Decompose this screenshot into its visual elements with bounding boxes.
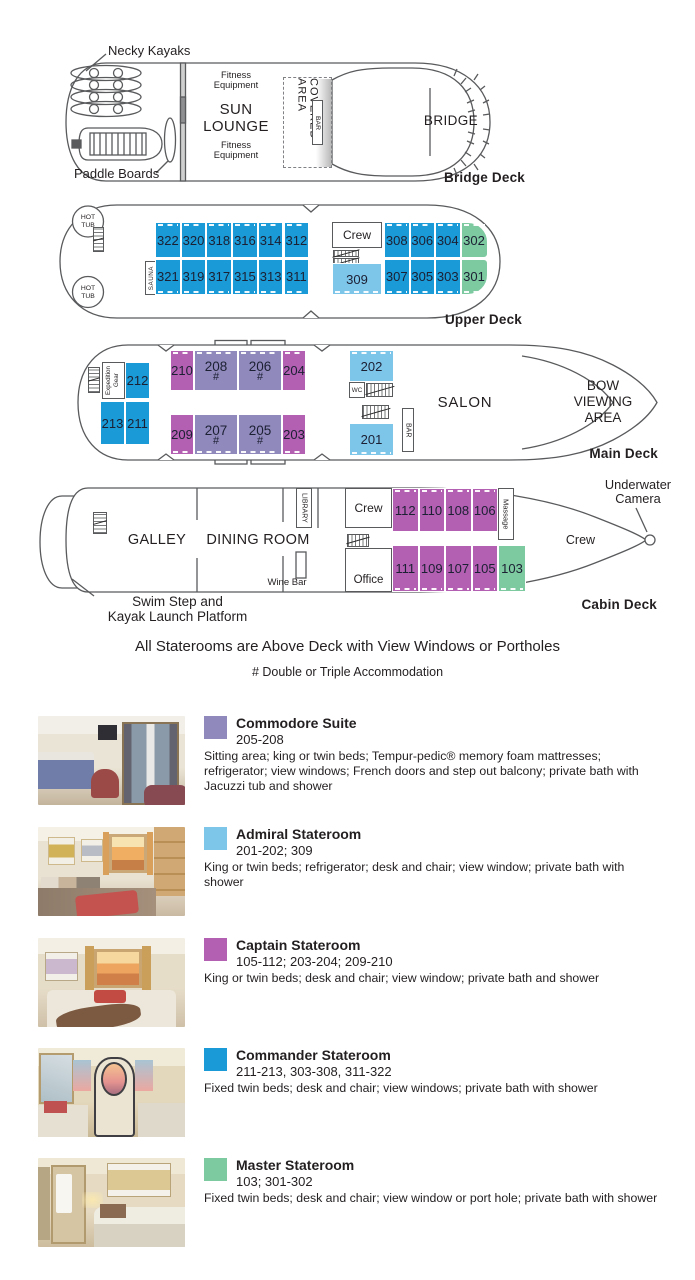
expedition-gear-box: Expedition Gear xyxy=(102,362,125,399)
cabin-108: 108 xyxy=(445,488,472,532)
admiral-description: King or twin beds; refrigerator; desk an… xyxy=(204,860,666,890)
photo-detail xyxy=(100,1204,126,1217)
photo-detail xyxy=(91,769,119,797)
double-triple-marker: # xyxy=(257,373,263,382)
photo-detail xyxy=(44,1101,68,1113)
cabin-105: 105 xyxy=(472,545,499,592)
photo-detail xyxy=(138,1103,185,1137)
massage-label: Massage xyxy=(502,499,511,529)
double-triple-marker: # xyxy=(213,373,219,382)
cabin-203: 203 xyxy=(282,414,306,455)
cabin-103: 103 xyxy=(498,545,526,592)
photo-detail xyxy=(81,839,104,862)
cabin-110: 110 xyxy=(419,488,446,532)
photo-detail xyxy=(48,837,75,866)
cabin-112: 112 xyxy=(392,488,419,532)
cabin-stairs-aft xyxy=(93,512,107,534)
sun-lounge-label: SUN LOUNGE xyxy=(198,102,274,136)
fitness-equipment-bottom-label: Fitness Equipment xyxy=(206,139,266,161)
bridge-room-label: BRIDGE xyxy=(428,113,474,129)
master-description: Fixed twin beds; desk and chair; view wi… xyxy=(204,1191,666,1206)
covered-area: COVERED AREA xyxy=(283,77,332,168)
main-bar: BAR xyxy=(402,408,414,452)
stateroom-photo-captain xyxy=(38,938,185,1027)
galley-label: GALLEY xyxy=(112,532,202,548)
necky-kayaks-label: Necky Kayaks xyxy=(108,44,190,59)
commodore-description: Sitting area; king or twin beds; Tempur-… xyxy=(204,749,666,794)
underwater-camera-label: Underwater Camera xyxy=(582,476,694,508)
stateroom-photo-commodore xyxy=(38,716,185,805)
photo-detail xyxy=(85,946,94,991)
cabin-303: 303 xyxy=(435,259,461,296)
wc-box: WC xyxy=(349,382,365,398)
main-stairs-aft xyxy=(88,367,100,393)
cabin-321: 321 xyxy=(155,259,181,296)
accommodation-note: # Double or Triple Accommodation xyxy=(0,665,695,679)
commander-description: Fixed twin beds; desk and chair; view wi… xyxy=(204,1081,666,1096)
upper-deck: HOT TUB HOT TUB SAUNA 322 320 318 316 31… xyxy=(55,195,535,335)
library: LIBRARY xyxy=(296,488,312,528)
photo-detail xyxy=(45,952,78,981)
cabin-204: 204 xyxy=(282,350,306,391)
swim-step-label: Swim Step and Kayak Launch Platform xyxy=(70,594,285,624)
photo-detail xyxy=(135,1060,153,1090)
cabin-320: 320 xyxy=(181,222,207,258)
cabin-309: 309 xyxy=(332,263,382,295)
cabin-306: 306 xyxy=(410,222,436,258)
swim-step-line1: Swim Step and xyxy=(132,594,223,609)
cabin-106: 106 xyxy=(472,488,499,532)
double-triple-marker: # xyxy=(213,437,219,446)
photo-detail xyxy=(38,752,94,789)
main-deck-name: Main Deck xyxy=(520,446,658,461)
photo-detail xyxy=(56,1174,72,1213)
main-deck: Expedition Gear 212 213 211 210 208 # 20… xyxy=(70,335,680,470)
photo-detail xyxy=(154,827,185,896)
cabin-314: 314 xyxy=(258,222,284,258)
staterooms-note: All Staterooms are Above Deck with View … xyxy=(0,638,695,655)
office-box: Office xyxy=(345,548,392,592)
admiral-swatch xyxy=(204,827,227,850)
cabin-205: 205 # xyxy=(238,414,282,455)
dining-room-label: DINING ROOM xyxy=(202,532,314,548)
paddle-boards-label: Paddle Boards xyxy=(74,167,159,182)
admiral-rooms: 201-202; 309 xyxy=(236,843,313,858)
cabin-319: 319 xyxy=(181,259,207,296)
photo-detail xyxy=(109,834,147,873)
cabin-311: 311 xyxy=(284,259,310,296)
photo-detail xyxy=(94,949,143,988)
photo-detail xyxy=(107,1163,171,1197)
master-title: Master Stateroom xyxy=(236,1157,354,1173)
bridge-bar-label: BAR xyxy=(314,116,321,130)
commander-title: Commander Stateroom xyxy=(236,1047,391,1063)
double-triple-marker: # xyxy=(257,437,263,446)
main-stairs-fwd-upper xyxy=(366,383,393,397)
photo-detail xyxy=(39,1053,74,1103)
cabin-313: 313 xyxy=(258,259,284,296)
cabin-317: 317 xyxy=(206,259,232,296)
cabin-307: 307 xyxy=(384,259,410,296)
main-stairs-fwd-lower xyxy=(362,405,389,419)
commodore-swatch xyxy=(204,716,227,739)
captain-description: King or twin beds; desk and chair; view … xyxy=(204,971,666,986)
cabin-107: 107 xyxy=(445,545,472,592)
master-rooms: 103; 301-302 xyxy=(236,1174,313,1189)
photo-detail xyxy=(147,832,153,875)
library-label: LIBRARY xyxy=(301,493,308,523)
bridge-deck-name: Bridge Deck xyxy=(420,170,525,185)
admiral-title: Admiral Stateroom xyxy=(236,826,361,842)
photo-detail xyxy=(73,1060,91,1090)
cabin-111: 111 xyxy=(392,545,419,592)
cabin-312: 312 xyxy=(284,222,310,258)
photo-detail xyxy=(142,946,151,991)
cabin-deck-name: Cabin Deck xyxy=(547,597,657,612)
main-bar-label: BAR xyxy=(405,423,412,437)
expedition-gear-label: Expedition Gear xyxy=(105,363,121,398)
cabin-crew-aft-box: Crew xyxy=(345,488,392,528)
commodore-title: Commodore Suite xyxy=(236,715,357,731)
fitness-equipment-top-label: Fitness Equipment xyxy=(206,69,266,91)
swim-step-line2: Kayak Launch Platform xyxy=(108,609,248,624)
stateroom-photo-commander xyxy=(38,1048,185,1137)
cabin-318: 318 xyxy=(206,222,232,258)
deck-plan-page: Necky Kayaks Fitness Equipment SUN LOUNG… xyxy=(0,0,695,1280)
commander-rooms: 211-213, 303-308, 311-322 xyxy=(236,1064,392,1079)
upper-crew-box: Crew xyxy=(332,222,382,248)
cabin-212: 212 xyxy=(125,362,150,399)
cabin-209: 209 xyxy=(170,414,194,455)
wine-bar-label: Wine Bar xyxy=(256,577,318,589)
photo-detail xyxy=(38,1167,50,1240)
hot-tub-bottom-label: HOT TUB xyxy=(75,282,101,303)
cabin-211: 211 xyxy=(125,401,150,445)
cabin-109: 109 xyxy=(419,545,446,592)
cabin-207: 207 # xyxy=(194,414,238,455)
captain-rooms: 105-112; 203-204; 209-210 xyxy=(236,954,393,969)
cabin-crew-fwd-label: Crew xyxy=(553,532,608,547)
massage-room: Massage xyxy=(498,488,514,540)
stateroom-photo-admiral xyxy=(38,827,185,916)
photo-detail xyxy=(144,785,185,805)
cabin-stairs-mid xyxy=(347,534,369,547)
upper-deck-name: Upper Deck xyxy=(385,312,522,327)
photo-detail xyxy=(98,725,117,740)
bridge-bar: BAR xyxy=(312,100,323,145)
cabin-213: 213 xyxy=(100,401,125,445)
captain-swatch xyxy=(204,938,227,961)
captain-title: Captain Stateroom xyxy=(236,937,360,953)
upper-stairs-mid-1 xyxy=(333,250,359,257)
salon-label: SALON xyxy=(430,394,500,412)
cabin-deck: GALLEY DINING ROOM LIBRARY Wine Bar Crew… xyxy=(30,470,695,630)
cabin-208: 208 # xyxy=(194,350,238,391)
cabin-305: 305 xyxy=(410,259,436,296)
cabin-202: 202 xyxy=(349,350,394,382)
photo-detail xyxy=(94,990,126,1003)
cabin-210: 210 xyxy=(170,350,194,391)
bridge-deck: Necky Kayaks Fitness Equipment SUN LOUNG… xyxy=(60,40,535,190)
commodore-rooms: 205-208 xyxy=(236,732,284,747)
cabin-201: 201 xyxy=(349,423,394,456)
commander-swatch xyxy=(204,1048,227,1071)
bow-viewing-area-label: BOW VIEWING AREA xyxy=(559,377,647,427)
cabin-315: 315 xyxy=(232,259,258,296)
sauna-label: SAUNA xyxy=(148,266,155,290)
stateroom-photo-master xyxy=(38,1158,185,1247)
upper-stairs-aft xyxy=(93,227,104,252)
cabin-316: 316 xyxy=(232,222,258,258)
master-swatch xyxy=(204,1158,227,1181)
cabin-322: 322 xyxy=(155,222,181,258)
cabin-308: 308 xyxy=(384,222,410,258)
cabin-206: 206 # xyxy=(238,350,282,391)
cabin-304: 304 xyxy=(435,222,461,258)
